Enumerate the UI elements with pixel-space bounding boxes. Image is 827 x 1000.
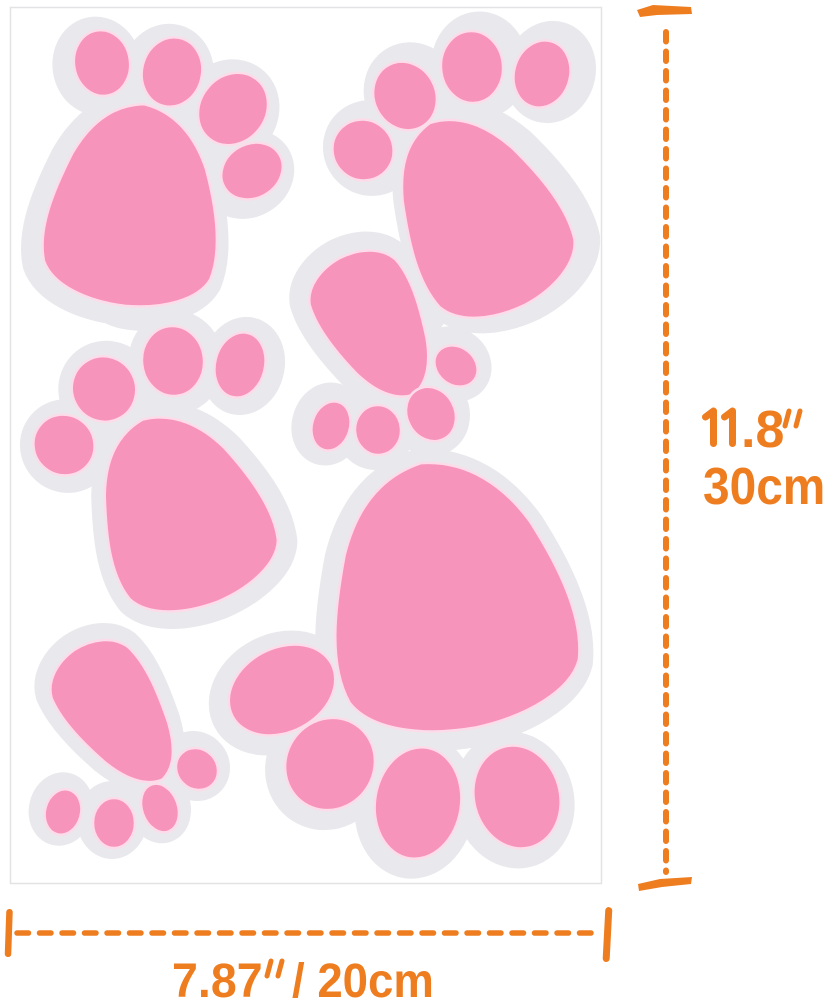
svg-text:/ 20cm: / 20cm bbox=[292, 954, 434, 1000]
svg-text:7.87: 7.87 bbox=[172, 954, 263, 1000]
svg-text:.8: .8 bbox=[741, 401, 784, 459]
svg-text:30cm: 30cm bbox=[703, 457, 825, 515]
